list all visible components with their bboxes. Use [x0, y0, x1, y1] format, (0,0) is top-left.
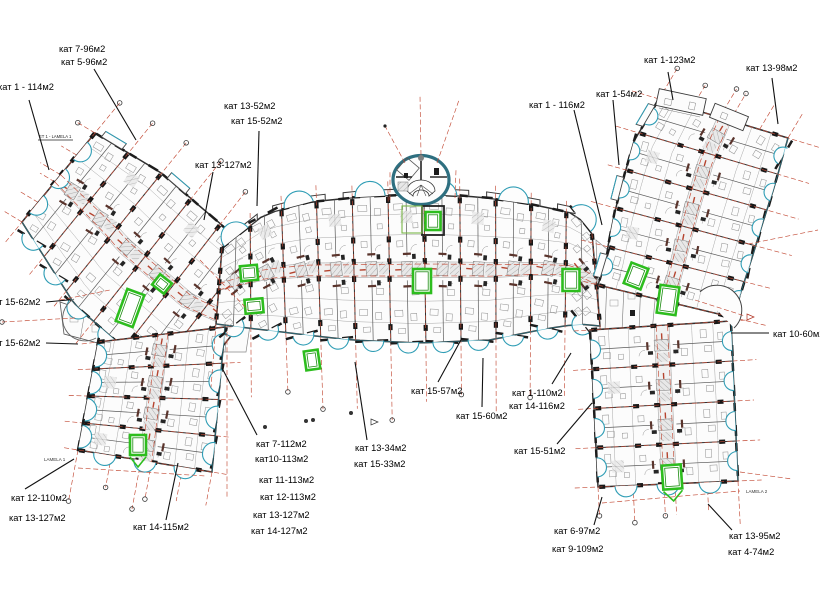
svg-text:кат 1-54м2: кат 1-54м2	[596, 89, 642, 99]
svg-text:кат 7-112м2: кат 7-112м2	[256, 439, 307, 449]
svg-text:кат 13-34м2: кат 13-34м2	[355, 443, 406, 453]
svg-text:кат 1 - 116м2: кат 1 - 116м2	[529, 100, 585, 110]
svg-text:кат 1-123м2: кат 1-123м2	[644, 55, 695, 65]
svg-text:кат 11-113м2: кат 11-113м2	[259, 475, 314, 485]
svg-text:кат 13-127м2: кат 13-127м2	[9, 513, 66, 523]
svg-text:кат 15-57м2: кат 15-57м2	[411, 386, 462, 396]
svg-text:кат 7-96м2: кат 7-96м2	[59, 44, 105, 54]
svg-text:кат 13-52м2: кат 13-52м2	[224, 101, 275, 111]
svg-text:кат 13-127м2: кат 13-127м2	[253, 510, 310, 520]
svg-text:кат 14-127м2: кат 14-127м2	[251, 526, 308, 536]
svg-text:ЕТ 1 - LAMELA 1: ЕТ 1 - LAMELA 1	[39, 134, 72, 139]
svg-text:кат 13-98м2: кат 13-98м2	[746, 63, 797, 73]
svg-text:кат 12-113м2: кат 12-113м2	[260, 492, 316, 502]
svg-text:кат 12-110м2: кат 12-110м2	[11, 493, 67, 503]
svg-text:кат 14-115м2: кат 14-115м2	[133, 522, 189, 532]
svg-text:кат10-113м2: кат10-113м2	[255, 454, 308, 464]
svg-text:кат 15-51м2: кат 15-51м2	[514, 446, 565, 456]
svg-text:кат 15-52м2: кат 15-52м2	[231, 116, 282, 126]
svg-text:кат 1-110м2: кат 1-110м2	[512, 388, 563, 398]
svg-text:кат 15-33м2: кат 15-33м2	[354, 459, 405, 469]
svg-text:кат 6-97м2: кат 6-97м2	[554, 526, 600, 536]
svg-text:кат 14-116м2: кат 14-116м2	[509, 401, 565, 411]
svg-text:кат 10-60м2: кат 10-60м2	[773, 329, 820, 339]
svg-text:кат 9-109м2: кат 9-109м2	[552, 544, 603, 554]
svg-text:LAMELA 2: LAMELA 2	[746, 489, 768, 494]
svg-text:LAMELA 1: LAMELA 1	[44, 457, 66, 462]
svg-text:кат 15-62м2: кат 15-62м2	[0, 297, 40, 307]
svg-text:кат 15-60м2: кат 15-60м2	[456, 411, 507, 421]
svg-text:кат 5-96м2: кат 5-96м2	[61, 57, 107, 67]
svg-text:кат 4-74м2: кат 4-74м2	[728, 547, 774, 557]
svg-text:кат 1 - 114м2: кат 1 - 114м2	[0, 82, 54, 92]
svg-text:кат 15-62м2: кат 15-62м2	[0, 338, 40, 348]
svg-text:кат 13-127м2: кат 13-127м2	[195, 160, 252, 170]
svg-text:кат 13-95м2: кат 13-95м2	[729, 531, 780, 541]
